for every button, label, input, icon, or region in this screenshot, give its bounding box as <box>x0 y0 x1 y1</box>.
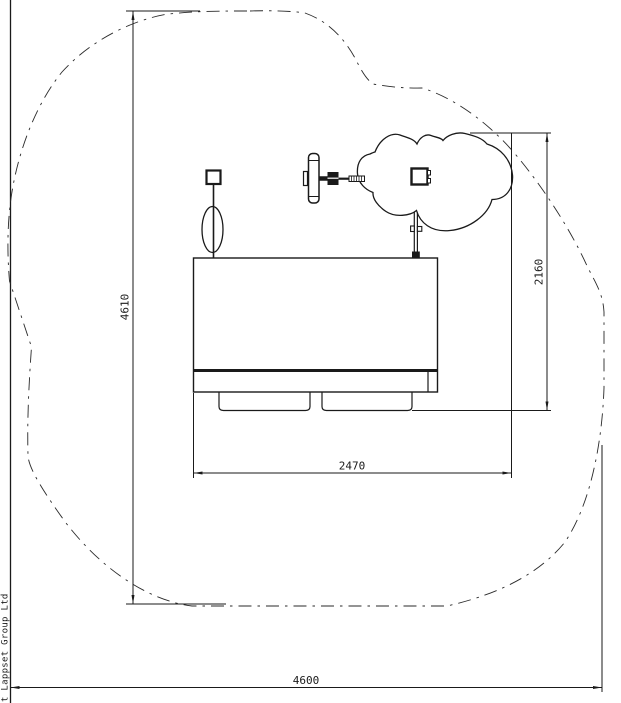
play-unit <box>194 133 513 411</box>
technical-drawing-canvas: t Lappset Group Ltd 4610 4600 <box>0 0 621 703</box>
section-bracket-bottom <box>428 179 431 184</box>
right-base-pad <box>322 392 412 411</box>
dimension-total-height: 4610 <box>119 11 227 604</box>
arm-hatched-section <box>349 176 365 182</box>
post-right-bracket <box>417 227 421 232</box>
leaf-pole <box>202 171 223 259</box>
arrowhead-left <box>11 686 20 689</box>
post-foot <box>412 252 420 258</box>
leaf-element <box>202 207 223 253</box>
left-base-pad <box>219 392 310 411</box>
cloud-panel <box>357 133 512 231</box>
cloud-outline <box>357 133 512 231</box>
dimension-label-2160: 2160 <box>533 259 546 286</box>
drawing-frame: t Lappset Group Ltd <box>1 0 11 703</box>
arrowhead-up <box>132 11 135 20</box>
arrowhead-up <box>546 133 549 142</box>
dimension-total-width: 4600 <box>11 445 603 692</box>
post-cross-section-square <box>412 169 428 185</box>
arrowhead-left <box>194 472 203 475</box>
safety-zone-dashed-boundary <box>8 11 604 606</box>
main-body <box>194 258 438 411</box>
arrowhead-down <box>132 595 135 604</box>
drawing-sheet: t Lappset Group Ltd 4610 4600 <box>0 0 621 703</box>
post-left-bracket <box>411 226 415 232</box>
arrowhead-down <box>546 402 549 411</box>
safety-area-outline <box>8 11 604 606</box>
arm-assembly <box>304 154 365 204</box>
dimension-label-4600: 4600 <box>293 674 320 687</box>
section-bracket-top <box>428 171 431 176</box>
pole-top-square <box>207 171 221 185</box>
dimension-label-2470: 2470 <box>339 460 366 473</box>
cylinder-side-plate <box>304 172 308 186</box>
dimension-label-4610: 4610 <box>119 294 132 321</box>
arrowhead-right <box>593 686 602 689</box>
arrowhead-right <box>503 472 512 475</box>
copyright-text: t Lappset Group Ltd <box>1 593 11 702</box>
